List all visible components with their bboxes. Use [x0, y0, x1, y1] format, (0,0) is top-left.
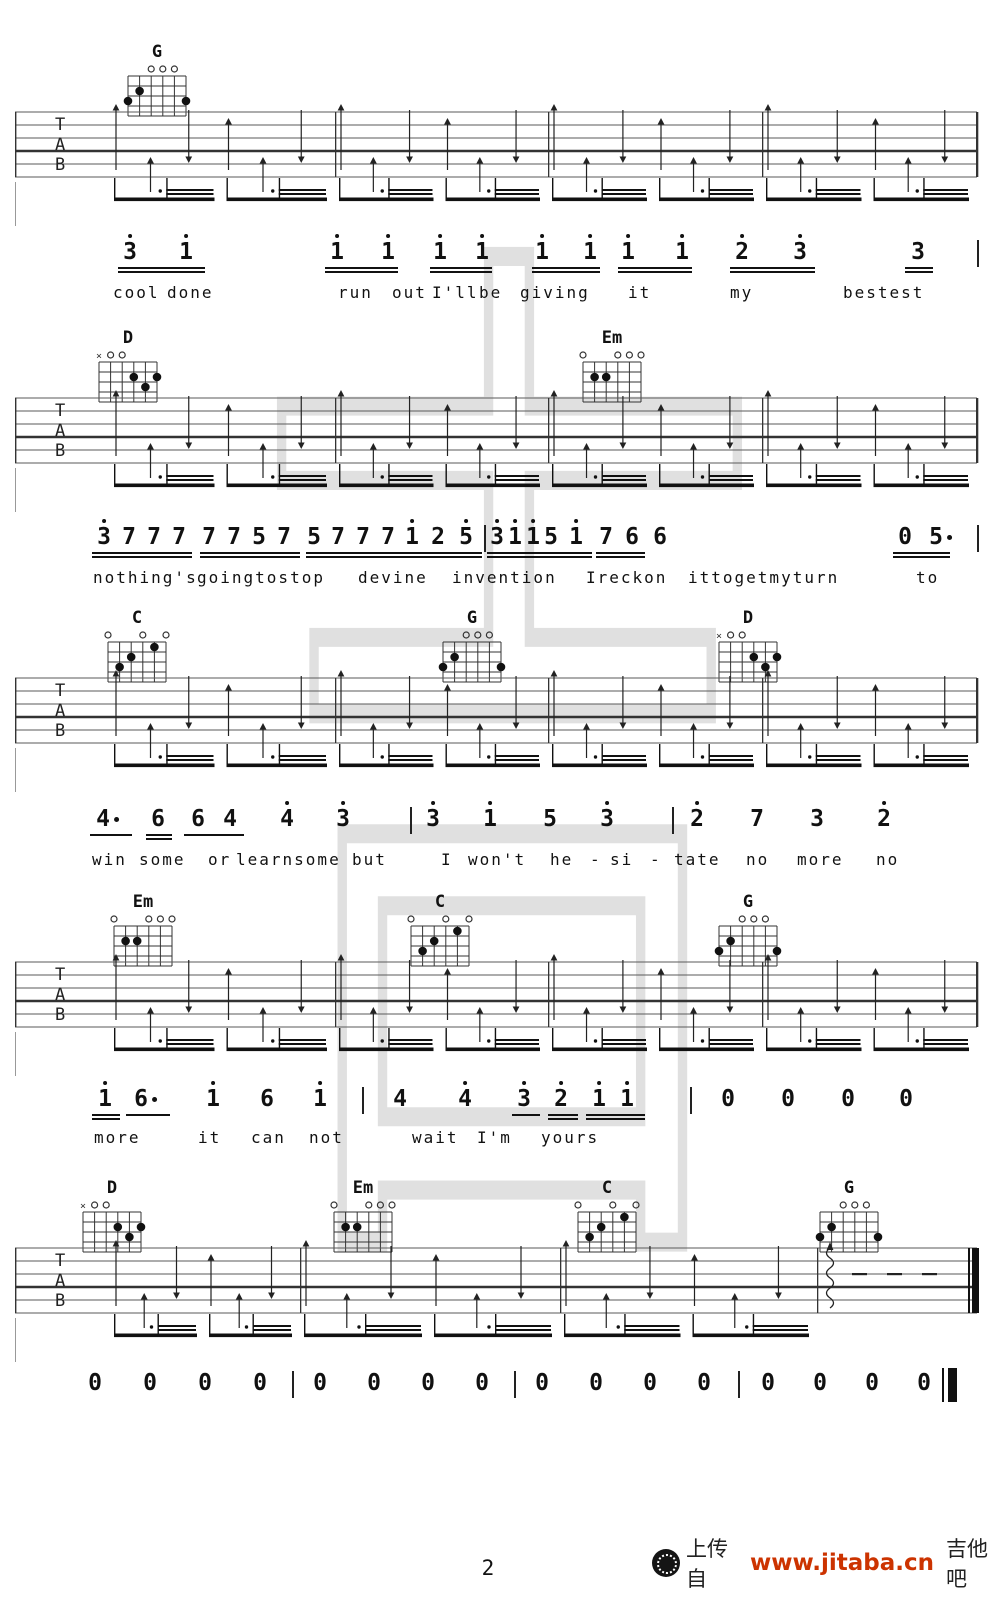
- soundhole-logo-icon: [652, 1549, 680, 1577]
- upload-text: 上传自: [686, 1533, 740, 1593]
- site-name: 吉他吧: [946, 1533, 1000, 1593]
- site-url: www.jitaba.cn: [750, 1550, 934, 1576]
- page-number: 2: [470, 1556, 506, 1580]
- footer: 2 上传自 www.jitaba.cn 吉他吧: [0, 0, 1000, 1600]
- footer-credit: 上传自 www.jitaba.cn 吉他吧: [652, 1546, 1000, 1580]
- tab-sheet-page: 吉 GTABD×EmTABCGD×TABEmCGTABD×EmCGTAB3111…: [0, 0, 1000, 1600]
